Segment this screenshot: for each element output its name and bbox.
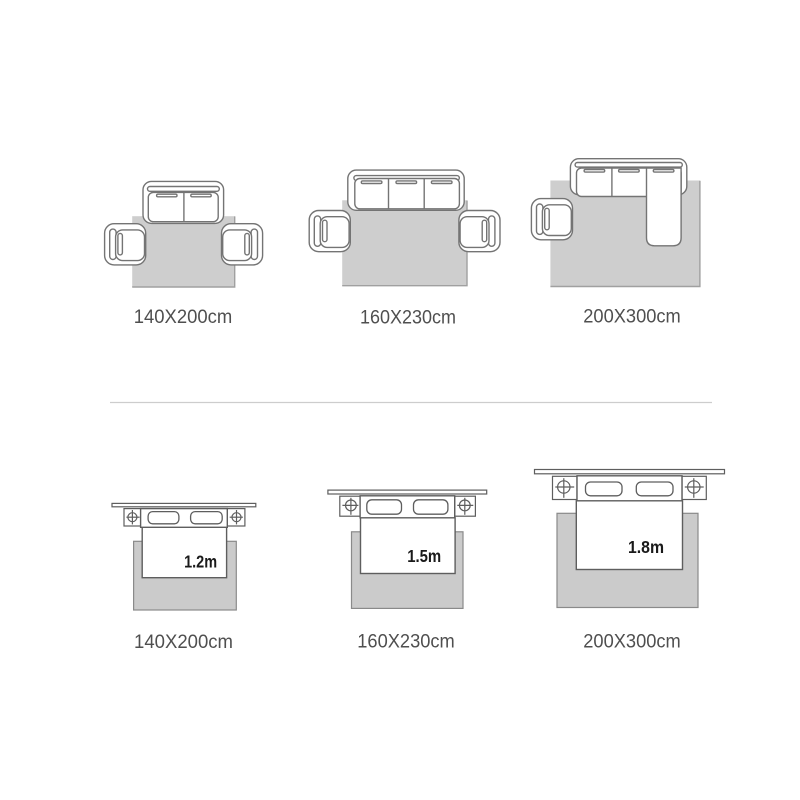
svg-text:200X300cm: 200X300cm (583, 631, 681, 653)
svg-text:140X200cm: 140X200cm (134, 631, 233, 653)
svg-text:160X230cm: 160X230cm (357, 631, 455, 653)
svg-text:1.5m: 1.5m (407, 546, 441, 566)
svg-text:1.8m: 1.8m (628, 537, 664, 557)
svg-text:160X230cm: 160X230cm (360, 307, 456, 329)
svg-text:200X300cm: 200X300cm (583, 306, 681, 328)
svg-text:140X200cm: 140X200cm (134, 306, 233, 328)
svg-text:1.2m: 1.2m (184, 552, 217, 572)
